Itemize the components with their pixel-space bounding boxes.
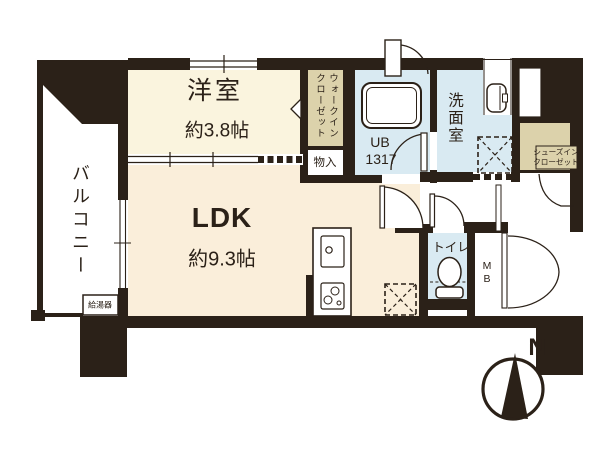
walkin-closet-label-line1: ウォークイン — [326, 73, 339, 139]
wall-bottom — [80, 316, 583, 328]
entrance-step-frame — [496, 185, 501, 231]
ldk-floor — [128, 160, 420, 318]
western-room-label: 洋室 — [187, 71, 243, 107]
kitchen-counter-icon — [313, 228, 351, 316]
balcony-wall-bottom — [43, 313, 83, 317]
door-entrance — [502, 233, 559, 308]
unit-bath-label: UB — [370, 134, 389, 150]
wall-hall-top-corner — [511, 172, 520, 182]
wall-ldk-toilet — [419, 224, 428, 317]
ldk-label: LDK — [192, 202, 253, 234]
washroom-label: 洗面室 — [443, 92, 465, 145]
walkin-closet-label-line2: クローゼット — [313, 73, 326, 139]
shoes-closet-label-line2: クローゼット — [533, 157, 579, 168]
meter-box-label-b: B — [483, 273, 492, 286]
washbasin-icon — [487, 84, 508, 112]
wall-below-storage — [300, 175, 382, 183]
wall-top-left-diagonal — [37, 60, 128, 124]
wall-kitchen-stub — [306, 275, 313, 318]
wall-hall-top — [420, 172, 473, 182]
ldk-size: 約9.3帖 — [188, 243, 256, 272]
toilet-label: トイレ — [432, 237, 470, 256]
wall-left-low — [118, 288, 128, 318]
wall-left-mid — [118, 118, 128, 200]
wall-closet-right — [343, 58, 355, 183]
entrance-step-curve — [539, 174, 574, 206]
line-under-shoes-closet — [518, 170, 577, 173]
wall-closet-divider — [306, 146, 345, 150]
bathtub-icon — [362, 83, 421, 128]
meter-box-label-m: M — [483, 260, 492, 273]
pipe-space-box — [519, 68, 541, 117]
wall-washroom-right — [512, 118, 520, 178]
western-room-size: 約3.8帖 — [185, 116, 249, 143]
wall-toilet-bottom — [428, 299, 467, 310]
balcony-corner-block — [31, 310, 45, 321]
floor-plan: 洋室 約3.8帖 LDK 約9.3帖 バルコニー 給湯器 ウォークイン クローゼ… — [0, 0, 600, 450]
unit-bath-size: 1317 — [365, 151, 396, 167]
walkin-closet-label: ウォークイン クローゼット — [313, 73, 339, 139]
door-toilet — [430, 194, 464, 227]
balcony-wall-left — [37, 60, 43, 316]
wall-genkan-right-stub — [570, 218, 583, 232]
storage-label: 物入 — [314, 154, 337, 170]
meter-box-label: M B — [483, 260, 492, 286]
kitchen-sink-icon — [321, 236, 344, 267]
sliding-partition — [128, 152, 303, 167]
compass-icon — [483, 353, 543, 419]
water-heater-label: 給湯器 — [88, 300, 112, 311]
balcony-label: バルコニー — [67, 164, 93, 279]
compass-north-label: N — [528, 334, 545, 362]
wall-ub-right-upper — [430, 62, 437, 132]
block-bottom-left — [80, 316, 127, 377]
kitchen-stove-icon — [321, 283, 344, 309]
